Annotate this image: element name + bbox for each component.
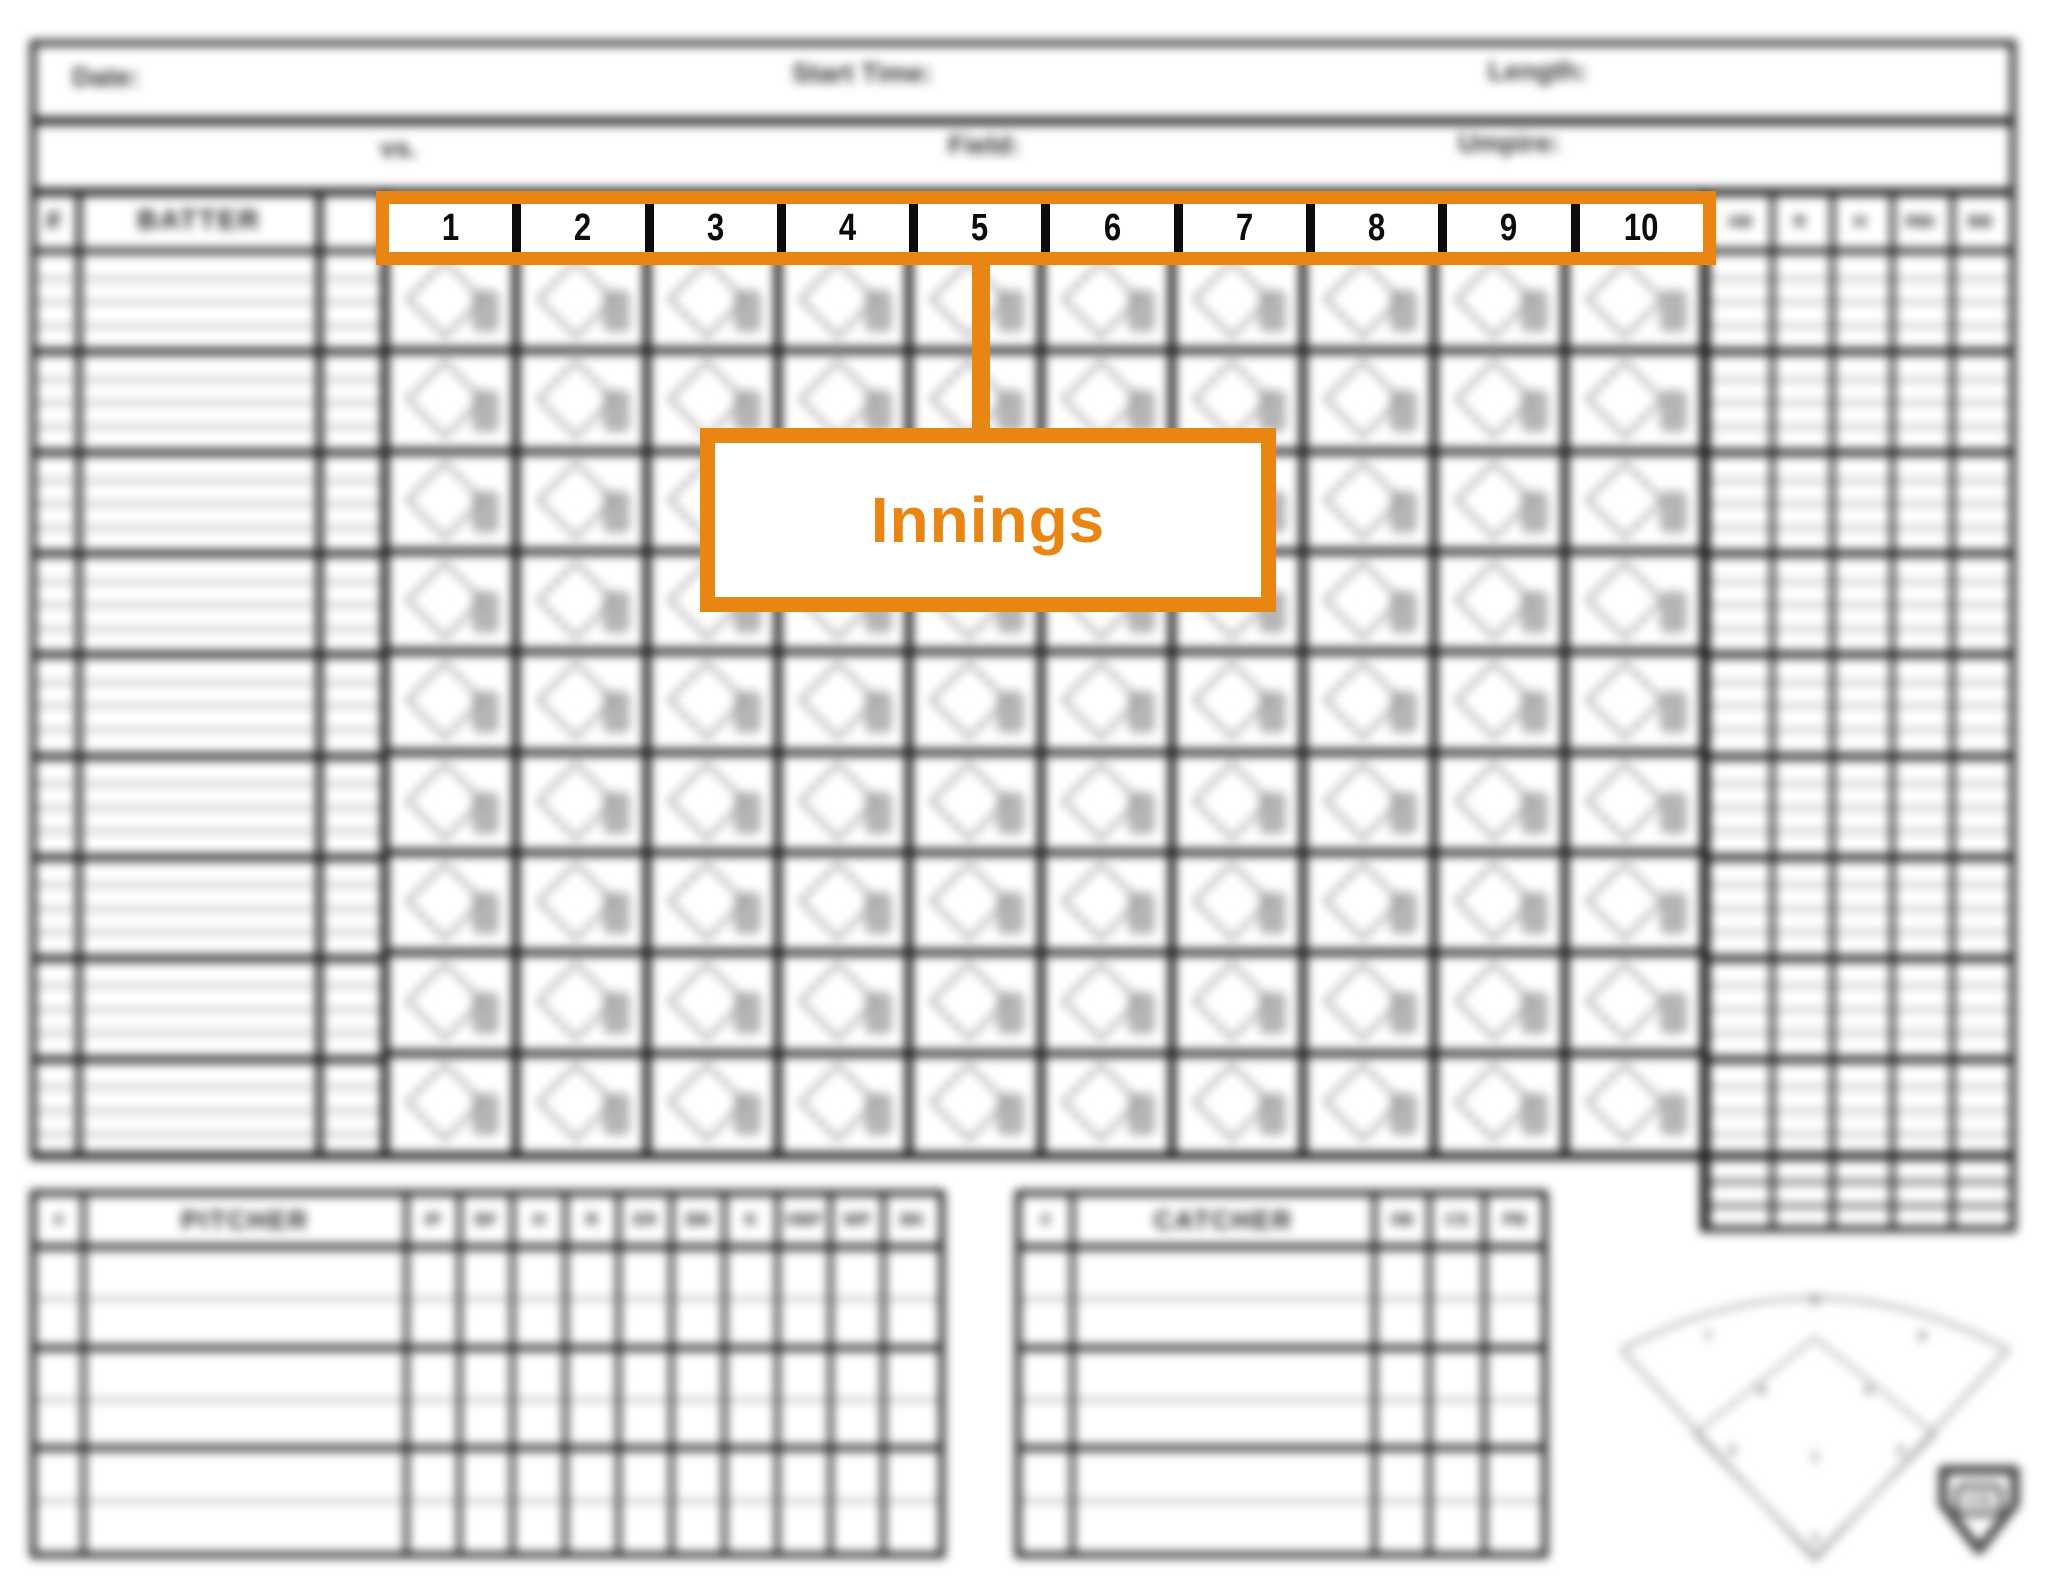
table-cell (833, 1401, 886, 1451)
scoring-cell (1569, 956, 1700, 1056)
sub-row-line (1710, 884, 2010, 886)
cell-stats-smudge (997, 992, 1024, 1034)
batter-row (36, 1063, 381, 1157)
table-cell (409, 1401, 462, 1451)
vs-label: vs. (380, 133, 418, 164)
cell-stats-smudge (1660, 491, 1687, 533)
batter-row (36, 962, 381, 1063)
innings-callout-box: Innings (700, 428, 1276, 612)
sub-row-line (1710, 426, 2010, 428)
sub-row-line (1710, 628, 2010, 630)
cell-stats-smudge (472, 390, 499, 432)
sub-row-line (1710, 783, 2010, 785)
scoring-cell (1045, 956, 1176, 1056)
inning-number: 6 (1103, 207, 1120, 250)
stat-column-header: K (727, 1196, 780, 1250)
scoring-cell (1569, 455, 1700, 555)
cell-stats-smudge (603, 390, 630, 432)
scoring-cell (782, 856, 913, 956)
stat-column-header: SB (1377, 1196, 1432, 1250)
table-cell (727, 1401, 780, 1451)
cell-stats-smudge (1259, 691, 1286, 733)
cell-stats-smudge (865, 1093, 892, 1135)
sub-row-line (1710, 1009, 2010, 1011)
scoring-cell (520, 756, 651, 856)
cell-stats-smudge (472, 1093, 499, 1135)
table-cell (86, 1401, 409, 1451)
table-cell (36, 1502, 86, 1552)
cell-stats-smudge (1521, 792, 1548, 834)
cell-stats-smudge (734, 290, 761, 332)
scoring-cell (389, 455, 520, 555)
sub-row-line (36, 402, 381, 404)
innings-highlight-strip: 12345678910 (376, 191, 1716, 265)
table-cell (409, 1502, 462, 1552)
table-cell (886, 1502, 939, 1552)
number-column-header: # (30, 204, 76, 236)
stat-column-line (1770, 188, 1775, 1232)
batter-rows-section (36, 254, 381, 1157)
table-cell (1432, 1451, 1487, 1501)
sub-row-line (1710, 830, 2010, 832)
sheet-border-right (2010, 40, 2016, 1232)
cell-stats-smudge (1390, 691, 1417, 733)
cell-stats-smudge (1259, 1093, 1286, 1135)
inning-header-cell: 4 (786, 204, 909, 252)
sub-row-line (1710, 581, 2010, 583)
inning-separator (1438, 204, 1447, 252)
cell-stats-smudge (1128, 792, 1155, 834)
logo-text: CS (1966, 1491, 1991, 1511)
table-cell (462, 1502, 515, 1552)
inning-header-cell: 5 (918, 204, 1041, 252)
table-cell (1021, 1502, 1075, 1552)
table-cell (568, 1451, 621, 1501)
stat-column-header: BB (674, 1196, 727, 1250)
inning-number: 8 (1368, 207, 1385, 250)
table-cell (621, 1351, 674, 1401)
cell-stats-smudge (603, 290, 630, 332)
batter-row (1710, 1063, 2010, 1157)
scoring-cell (520, 254, 651, 354)
date-label: Date: (72, 62, 140, 93)
inning-header-cell: 9 (1447, 204, 1570, 252)
scoring-cell (1438, 655, 1569, 755)
pitcher-table: #PITCHERIPBFHRERBBKHBPWPBK (30, 1190, 945, 1558)
sub-row-line (36, 325, 381, 327)
table-cell (409, 1300, 462, 1350)
scoring-cell (651, 1057, 782, 1157)
batter-row (36, 760, 381, 861)
table-cell (86, 1250, 409, 1300)
sub-row-line (36, 1110, 381, 1112)
umpire-label: Umpire: (1458, 128, 1560, 159)
cell-stats-smudge (1390, 792, 1417, 834)
scoring-cell (782, 756, 913, 856)
sub-row-line (1710, 604, 2010, 606)
cell-stats-smudge (603, 992, 630, 1034)
scoring-cell (1438, 956, 1569, 1056)
stat-column-header: R (568, 1196, 621, 1250)
inning-separator (1041, 204, 1050, 252)
sub-row-line (1710, 480, 2010, 482)
scoring-cell (1307, 655, 1438, 755)
cell-stats-smudge (865, 390, 892, 432)
name-column-header: PITCHER (86, 1196, 409, 1250)
table-cell (36, 1300, 86, 1350)
table-cell (833, 1351, 886, 1401)
basepath-diamond-icon (1585, 1062, 1664, 1141)
cell-stats-smudge (1521, 1093, 1548, 1135)
table-cell (1487, 1300, 1542, 1350)
batter-row (36, 861, 381, 962)
cell-stats-smudge (1660, 591, 1687, 633)
table-cell (568, 1250, 621, 1300)
sub-row-line (36, 527, 381, 529)
table-cell (462, 1300, 515, 1350)
stat-column-header: BF (462, 1196, 515, 1250)
inning-header-cell: 8 (1315, 204, 1438, 252)
batter-row (1710, 962, 2010, 1063)
sub-row-line (1710, 729, 2010, 731)
scoring-cell (782, 254, 913, 354)
basepath-diamond-icon (1585, 460, 1664, 539)
table-cell (1377, 1351, 1432, 1401)
scoring-cell (1176, 956, 1307, 1056)
inning-number: 4 (839, 207, 856, 250)
cell-stats-smudge (472, 290, 499, 332)
table-cell (568, 1300, 621, 1350)
sub-row-line (1710, 1086, 2010, 1088)
table-cell (86, 1451, 409, 1501)
cell-stats-smudge (997, 1093, 1024, 1135)
cell-stats-smudge (472, 892, 499, 934)
scoring-cell (913, 756, 1044, 856)
position-number: 6 (1758, 1382, 1766, 1399)
scoring-cell (1176, 254, 1307, 354)
scoring-cell (1176, 655, 1307, 755)
batter-row (36, 254, 381, 355)
cell-stats-smudge (1128, 1093, 1155, 1135)
table-cell (833, 1300, 886, 1350)
table-cell (1377, 1451, 1432, 1501)
table-cell (409, 1451, 462, 1501)
cell-stats-smudge (865, 792, 892, 834)
basepath-diamond-icon (1585, 861, 1664, 940)
basepath-diamond-icon (1585, 761, 1664, 840)
basepath-diamond-icon (1585, 360, 1664, 439)
table-cell (674, 1300, 727, 1350)
table-cell (1075, 1351, 1377, 1401)
stats-extension-bottom (1700, 1226, 2016, 1232)
table-cell (1075, 1300, 1377, 1350)
cell-stats-smudge (734, 992, 761, 1034)
cell-stats-smudge (734, 691, 761, 733)
cell-stats-smudge (1521, 390, 1548, 432)
scoring-cell (520, 354, 651, 454)
table-cell (1377, 1502, 1432, 1552)
table-cell (621, 1502, 674, 1552)
stat-column-header: ER (621, 1196, 674, 1250)
cell-stats-smudge (1390, 491, 1417, 533)
scoring-cell (1307, 455, 1438, 555)
scoring-cell (1045, 856, 1176, 956)
inning-number: 2 (574, 207, 591, 250)
sub-row-line (36, 503, 381, 505)
batter-column-header: BATTER (82, 204, 316, 236)
table-cell (36, 1451, 86, 1501)
scoring-cell (1569, 756, 1700, 856)
position-number: 2 (1811, 1530, 1819, 1547)
table-cell (621, 1250, 674, 1300)
stat-column-header: R (1770, 196, 1830, 248)
position-number: 4 (1864, 1382, 1873, 1399)
sub-row-line (1710, 682, 2010, 684)
scoring-cell (1569, 655, 1700, 755)
basepath-diamond-icon (1585, 560, 1664, 639)
scoring-cell (1438, 555, 1569, 655)
cell-stats-smudge (997, 390, 1024, 432)
cell-stats-smudge (472, 992, 499, 1034)
scoring-cell (1569, 1057, 1700, 1157)
cell-stats-smudge (472, 691, 499, 733)
stat-column-header: H (515, 1196, 568, 1250)
batter-row (1710, 557, 2010, 658)
stat-column-header: CS (1432, 1196, 1487, 1250)
scoring-cell (913, 1057, 1044, 1157)
basepath-diamond-icon (1585, 259, 1664, 338)
cell-stats-smudge (1128, 992, 1155, 1034)
cell-stats-smudge (1521, 691, 1548, 733)
cell-stats-smudge (1521, 591, 1548, 633)
sub-row-line (1710, 527, 2010, 529)
callout-connector-line (972, 263, 990, 430)
position-number: 5 (1728, 1442, 1736, 1459)
sub-row-line (1710, 503, 2010, 505)
inning-header-cell: 2 (521, 204, 644, 252)
basepath-diamond-icon (1585, 661, 1664, 740)
cell-stats-smudge (603, 1093, 630, 1135)
scoring-cell (389, 555, 520, 655)
scoring-cell (1438, 756, 1569, 856)
table-cell (886, 1300, 939, 1350)
inning-separator (512, 204, 521, 252)
cell-stats-smudge (997, 892, 1024, 934)
scoring-cell (1176, 856, 1307, 956)
table-cell (780, 1451, 833, 1501)
cell-stats-smudge (1660, 290, 1687, 332)
table-cell (1432, 1502, 1487, 1552)
table-cell (1377, 1300, 1432, 1350)
table-cell (1377, 1250, 1432, 1300)
batter-row (36, 557, 381, 658)
cell-stats-smudge (865, 290, 892, 332)
table-cell (780, 1250, 833, 1300)
scoring-cell (1438, 254, 1569, 354)
sub-row-line (1710, 931, 2010, 933)
scoring-cell (520, 655, 651, 755)
table-cell (833, 1451, 886, 1501)
table-cell (780, 1502, 833, 1552)
sub-row-line (36, 682, 381, 684)
sub-row-line (1710, 1133, 2010, 1135)
sub-row-line (1710, 807, 2010, 809)
scoring-cell (1045, 756, 1176, 856)
cell-stats-smudge (1660, 691, 1687, 733)
scoring-cell (1307, 555, 1438, 655)
inning-separator (1571, 204, 1580, 252)
stat-column-header: BB (1950, 196, 2010, 248)
scoring-cell (1307, 354, 1438, 454)
scoring-cell (389, 1057, 520, 1157)
scoring-cell (520, 956, 651, 1056)
table-cell (621, 1300, 674, 1350)
table-cell (727, 1250, 780, 1300)
sub-row-line (36, 278, 381, 280)
table-cell (621, 1451, 674, 1501)
sub-row-line (36, 628, 381, 630)
grid-right-line (1700, 188, 1710, 1232)
table-cell (886, 1401, 939, 1451)
table-cell (727, 1502, 780, 1552)
table-cell (621, 1401, 674, 1451)
scoring-cell (1045, 254, 1176, 354)
scoring-cell (651, 956, 782, 1056)
table-cell (1021, 1401, 1075, 1451)
cell-stats-smudge (1660, 390, 1687, 432)
table-cell (833, 1250, 886, 1300)
cell-stats-smudge (1521, 992, 1548, 1034)
cell-stats-smudge (603, 892, 630, 934)
table-cell (568, 1351, 621, 1401)
inning-separator (909, 204, 918, 252)
table-cell (1075, 1502, 1377, 1552)
table-cell (1432, 1401, 1487, 1451)
inning-header-cell: 3 (654, 204, 777, 252)
table-cell (886, 1451, 939, 1501)
name-column-header: CATCHER (1075, 1196, 1377, 1250)
header-row-divider (30, 117, 2016, 125)
sub-row-line (36, 1009, 381, 1011)
table-cell (833, 1502, 886, 1552)
stat-column-header: AB (1710, 196, 1770, 248)
table-cell (1432, 1351, 1487, 1401)
sub-row-line (1710, 402, 2010, 404)
sheet-border-top (30, 40, 2016, 46)
stat-columns-body (1710, 254, 2010, 1157)
scoring-cell (1569, 254, 1700, 354)
scoring-cell (520, 555, 651, 655)
field-label: Field: (948, 130, 1020, 161)
table-cell (886, 1351, 939, 1401)
table-cell (462, 1451, 515, 1501)
sub-row-line (1710, 1032, 2010, 1034)
inning-separator (1174, 204, 1183, 252)
sub-row-line (36, 985, 381, 987)
table-cell (1377, 1401, 1432, 1451)
scoring-cell (913, 655, 1044, 755)
table-cell (86, 1351, 409, 1401)
cell-stats-smudge (997, 792, 1024, 834)
sub-row-line (1710, 278, 2010, 280)
sub-row-line (36, 729, 381, 731)
sub-row-line (1710, 705, 2010, 707)
length-label: Length: (1488, 56, 1587, 87)
table-cell (515, 1351, 568, 1401)
sub-row-line (36, 301, 381, 303)
cell-stats-smudge (1259, 792, 1286, 834)
table-cell (674, 1502, 727, 1552)
scoresheet-graphic: Date: Start Time: Length: vs. Field: Ump… (0, 0, 2048, 1583)
scoring-cell (1438, 1057, 1569, 1157)
sub-row-line (1710, 379, 2010, 381)
scoring-cell (782, 956, 913, 1056)
basepath-diamond-icon (1585, 962, 1664, 1041)
scoring-cell (389, 254, 520, 354)
cell-stats-smudge (472, 792, 499, 834)
table-cell (36, 1250, 86, 1300)
scoring-cell (1307, 254, 1438, 354)
cell-stats-smudge (603, 491, 630, 533)
position-number: 8 (1811, 1292, 1819, 1309)
scoring-cell (1569, 856, 1700, 956)
cell-stats-smudge (1521, 892, 1548, 934)
table-cell (674, 1250, 727, 1300)
scoring-cell (389, 956, 520, 1056)
table-cell (36, 1351, 86, 1401)
stat-column-header: H (1830, 196, 1890, 248)
homeplate-logo: CS (1935, 1462, 2023, 1557)
batter-row (1710, 760, 2010, 861)
cell-stats-smudge (1660, 792, 1687, 834)
cell-stats-smudge (997, 691, 1024, 733)
scoring-cell (651, 756, 782, 856)
inning-number: 5 (971, 207, 988, 250)
grid-left-line (381, 188, 389, 1157)
batter-row (36, 355, 381, 456)
stat-column-header: IP (409, 1196, 462, 1250)
scoring-cell (1307, 856, 1438, 956)
scoring-cell (520, 455, 651, 555)
scoring-cell (389, 856, 520, 956)
inning-number: 1 (442, 207, 459, 250)
batter-row (1710, 355, 2010, 456)
sub-row-line (36, 426, 381, 428)
scoring-cell (651, 856, 782, 956)
scoring-cell (1307, 1057, 1438, 1157)
inning-number: 7 (1236, 207, 1253, 250)
table-cell (462, 1351, 515, 1401)
position-number: 3 (1896, 1442, 1904, 1459)
cell-stats-smudge (1390, 591, 1417, 633)
cell-stats-smudge (1259, 290, 1286, 332)
position-number: 7 (1704, 1328, 1712, 1345)
table-cell (36, 1401, 86, 1451)
sub-row-line (36, 884, 381, 886)
cell-stats-smudge (472, 591, 499, 633)
sub-row-line (36, 783, 381, 785)
table-cell (886, 1250, 939, 1300)
table-cell (1487, 1351, 1542, 1401)
cell-stats-smudge (1259, 390, 1286, 432)
cell-stats-smudge (865, 892, 892, 934)
stats-extension-line (1700, 1180, 2016, 1184)
table-cell (1075, 1401, 1377, 1451)
table-cell (1432, 1300, 1487, 1350)
cell-stats-smudge (472, 491, 499, 533)
cell-stats-smudge (1390, 892, 1417, 934)
scoring-cell (1176, 1057, 1307, 1157)
